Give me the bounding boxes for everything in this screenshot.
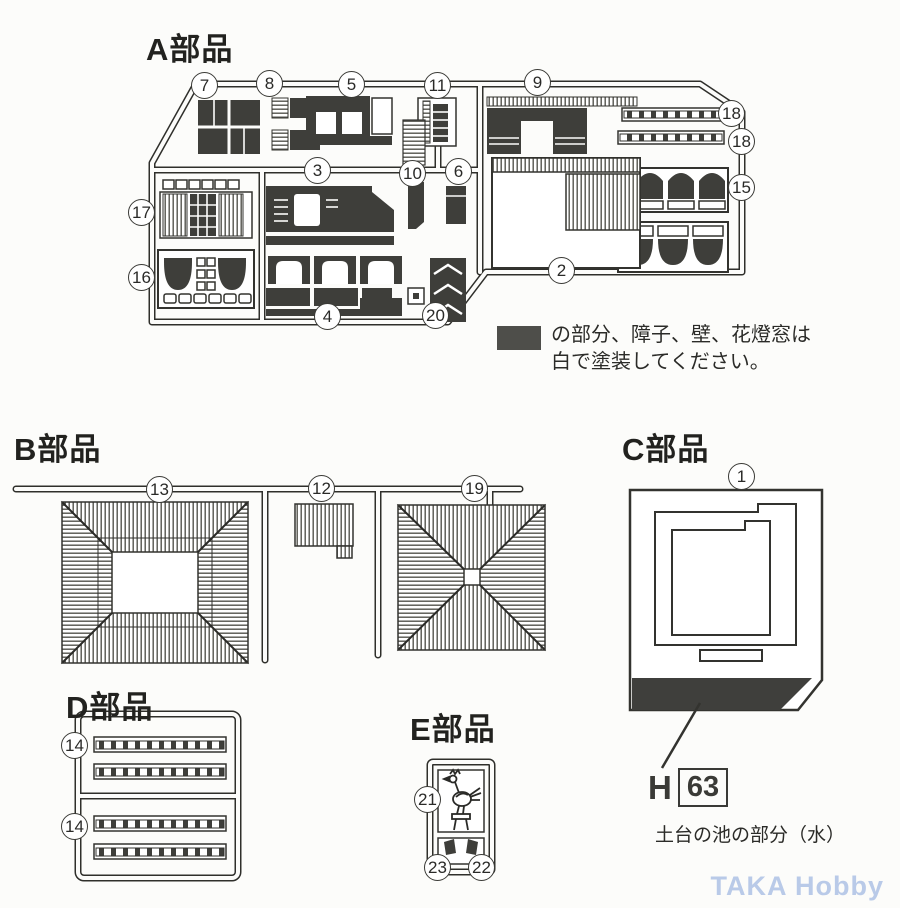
part-16-bell-panel — [158, 250, 254, 308]
part-13-square-roof — [62, 502, 248, 663]
callout-a-3: 3 — [304, 157, 331, 184]
part-20-small-piece — [408, 288, 424, 304]
section-a-title: A部品 — [146, 24, 233, 69]
dark-color-swatch — [497, 326, 541, 350]
callout-a-15: 15 — [728, 174, 755, 201]
callout-a-18b: 18 — [728, 128, 755, 155]
callout-a-7: 7 — [191, 72, 218, 99]
paint-code-badge: 63 — [678, 768, 728, 807]
part-3-wall — [266, 186, 394, 245]
callout-a-9: 9 — [524, 69, 551, 96]
callout-e-22: 22 — [468, 854, 495, 881]
part-18-railing-bottom — [618, 131, 724, 144]
pond-caption: 土台の池の部分（水） — [655, 820, 845, 847]
callout-a-8: 8 — [256, 70, 283, 97]
instruction-sheet: A部品 B部品 C部品 D部品 E部品 の部分、障子、壁、花燈窓は 白で塗装して… — [0, 0, 900, 908]
part-c-drawing — [630, 490, 822, 768]
part-7-wall-panel — [198, 100, 260, 154]
paint-note-line1: の部分、障子、壁、花燈窓は — [551, 324, 811, 346]
section-e-title: E部品 — [410, 704, 496, 749]
callout-a-18a: 18 — [718, 100, 745, 127]
section-b-title: B部品 — [14, 424, 101, 469]
callout-d-14b: 14 — [61, 813, 88, 840]
watermark-logo: TAKA Hobby — [711, 871, 884, 902]
sprue-d-drawing — [78, 714, 238, 878]
callout-b-12: 12 — [308, 475, 335, 502]
part-2-floor — [492, 158, 640, 268]
paint-prefix: H — [648, 769, 672, 807]
pond-leader-line — [662, 703, 700, 768]
part-5-wall-panel — [306, 96, 392, 145]
part-15-bell-windows-row1 — [632, 168, 728, 212]
part-18-railing-top — [622, 108, 722, 121]
callout-a-2: 2 — [548, 257, 575, 284]
callout-e-23: 23 — [424, 854, 451, 881]
section-d-title: D部品 — [66, 682, 153, 727]
callout-d-14a: 14 — [61, 732, 88, 759]
callout-a-11: 11 — [424, 72, 451, 99]
callout-a-16: 16 — [128, 264, 155, 291]
callout-c-1: 1 — [728, 463, 755, 490]
paint-note-text: の部分、障子、壁、花燈窓は 白で塗装してください。 — [551, 322, 811, 376]
section-c-title: C部品 — [622, 424, 709, 469]
part-19-pyramid-roof — [398, 505, 545, 650]
paint-note: の部分、障子、壁、花燈窓は 白で塗装してください。 — [497, 322, 811, 376]
callout-a-5: 5 — [338, 71, 365, 98]
sprue-b-drawing — [16, 489, 545, 663]
callout-b-13: 13 — [146, 476, 173, 503]
sprue-artwork — [0, 0, 900, 908]
callout-a-6: 6 — [445, 158, 472, 185]
callout-a-20: 20 — [422, 302, 449, 329]
paint-reference: H 63 — [648, 768, 728, 807]
part-17-shoji-panel — [160, 180, 252, 238]
part-12-small-roof — [295, 504, 353, 558]
paint-note-line2: 白で塗装してください。 — [551, 351, 770, 373]
sprue-a-drawing — [152, 84, 742, 322]
part-9-gate-wall — [487, 97, 637, 154]
callout-e-21: 21 — [414, 786, 441, 813]
callout-a-17: 17 — [128, 199, 155, 226]
part-10-piece — [408, 182, 424, 229]
callout-a-10: 10 — [399, 160, 426, 187]
callout-a-4: 4 — [314, 303, 341, 330]
part-11-panel — [403, 98, 456, 165]
callout-b-19: 19 — [461, 475, 488, 502]
